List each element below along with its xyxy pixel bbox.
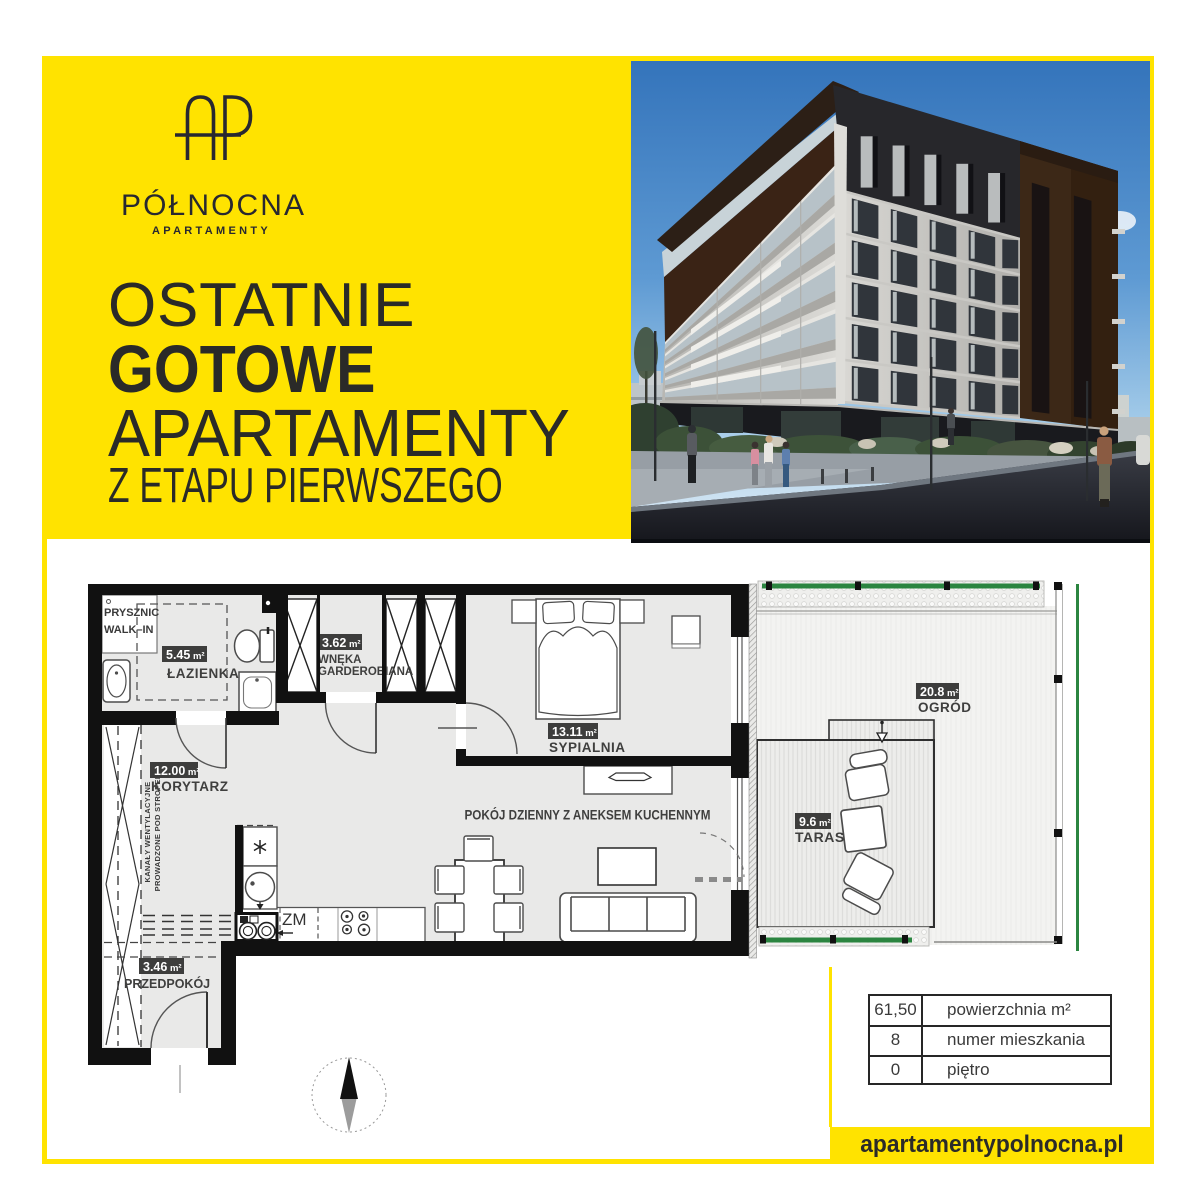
svg-text:KANAŁY WENTYLACYJNE: KANAŁY WENTYLACYJNE — [143, 782, 152, 883]
svg-text:PRYSZNIC: PRYSZNIC — [104, 607, 159, 619]
svg-text:WNĘKA: WNĘKA — [318, 654, 361, 666]
svg-text:TARAS: TARAS — [795, 829, 845, 845]
svg-text:3.62 m²: 3.62 m² — [322, 636, 361, 650]
svg-text:9.6 m²: 9.6 m² — [799, 815, 831, 829]
svg-text:OGRÓD: OGRÓD — [918, 700, 972, 715]
svg-text:POKÓJ DZIENNY Z ANEKSEM KUCHEN: POKÓJ DZIENNY Z ANEKSEM KUCHENNYM — [465, 806, 711, 823]
svg-text:ZM: ZM — [282, 910, 307, 929]
svg-text:PRZEDPOKÓJ: PRZEDPOKÓJ — [124, 976, 210, 991]
svg-text:3.46 m²: 3.46 m² — [143, 960, 182, 974]
svg-text:GARDEROBIANA: GARDEROBIANA — [318, 666, 413, 678]
svg-text:ŁAZIENKA: ŁAZIENKA — [167, 666, 239, 681]
svg-text:12.00 m²: 12.00 m² — [154, 764, 200, 778]
svg-text:20.8 m²: 20.8 m² — [920, 685, 959, 699]
svg-text:KORYTARZ: KORYTARZ — [151, 779, 229, 794]
svg-text:13.11 m²: 13.11 m² — [552, 725, 597, 739]
svg-text:SYPIALNIA: SYPIALNIA — [549, 740, 626, 755]
svg-text:5.45 m²: 5.45 m² — [166, 648, 205, 662]
svg-text:WALK–IN: WALK–IN — [104, 624, 154, 636]
